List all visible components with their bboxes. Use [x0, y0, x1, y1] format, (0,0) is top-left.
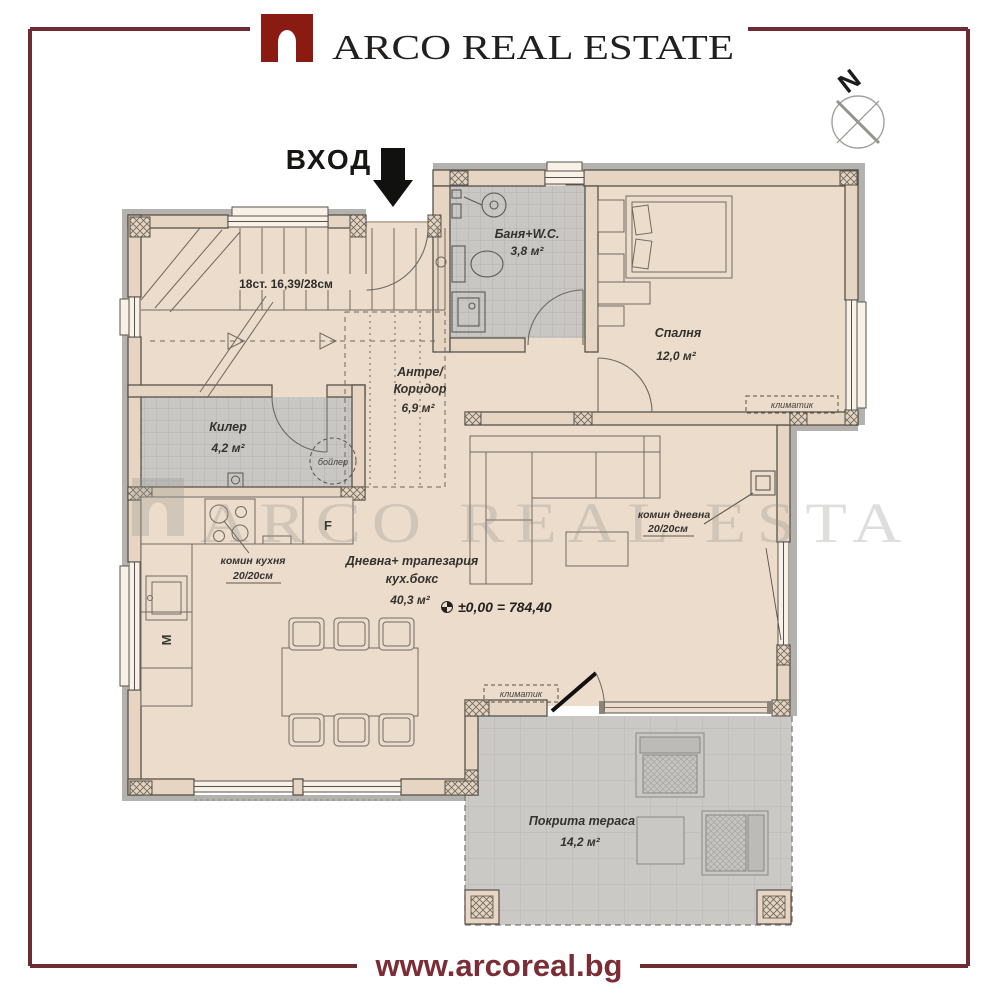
watermark-text: ARCO REAL ESTA — [200, 492, 912, 555]
bedroom-name: Спалня — [655, 326, 702, 340]
ac-bedroom-label: климатик — [771, 400, 814, 410]
level-marker-icon — [442, 602, 453, 613]
ac-living-label: климатик — [500, 689, 543, 699]
living-area: 40,3 м² — [389, 593, 431, 607]
dining-chair — [379, 618, 414, 650]
boiler-label: бойлер — [318, 457, 348, 467]
bathroom-name: Баня+W.C. — [495, 227, 560, 241]
terrace-slider-window — [599, 701, 773, 714]
footer-website: www.arcoreal.bg — [375, 948, 623, 983]
dining-chair — [379, 714, 414, 746]
living-name-line1: Дневна+ трапезария — [345, 554, 479, 568]
entrance-mark: ВХОД — [286, 144, 413, 207]
compass: N — [832, 63, 884, 148]
hallway-area: 6,9 м² — [402, 401, 436, 415]
dining-chair — [334, 714, 369, 746]
dresser — [598, 282, 650, 304]
chimney-kitchen-label: комин кухня — [221, 555, 286, 567]
hallway-name-line2: Коридор — [393, 382, 446, 396]
nightstand — [598, 200, 624, 232]
dining-set — [282, 618, 418, 746]
washing-machine-label: M — [159, 635, 174, 646]
floor-plan-page: ARCO REAL ESTATE N ВХОД — [0, 0, 1001, 1000]
chimney-kitchen-size: 20/20см — [232, 570, 273, 582]
dining-chair — [289, 714, 324, 746]
compass-north-label: N — [832, 63, 866, 99]
closet-area: 4,2 м² — [211, 441, 246, 455]
fridge-label: F — [324, 518, 332, 533]
terrace-side-table — [637, 817, 684, 864]
terrace-armchair-2 — [702, 811, 768, 875]
room-bathroom-floor — [450, 186, 585, 338]
chimney-living-label: комин дневна — [638, 509, 711, 521]
level-mark-label: ±0,00 = 784,40 — [458, 599, 552, 615]
chimney-living-size: 20/20см — [647, 523, 688, 535]
kitchen-sink — [146, 576, 187, 620]
dining-chair — [289, 618, 324, 650]
brand-arch-icon — [261, 14, 313, 62]
dining-table — [282, 648, 418, 716]
entrance-label: ВХОД — [286, 144, 372, 175]
brand-logo: ARCO REAL ESTATE — [261, 14, 734, 67]
closet-name: Килер — [209, 420, 247, 434]
living-name-line2: кух.бокс — [386, 572, 439, 586]
terrace-armchair-1 — [636, 733, 704, 797]
stairs-label: 18ст. 16,39/28см — [239, 277, 333, 291]
dining-chair — [334, 618, 369, 650]
brand-name: ARCO REAL ESTATE — [332, 28, 734, 67]
hallway-name-line1: Антре/ — [396, 365, 444, 379]
dresser — [598, 306, 624, 326]
terrace-area: 14,2 м² — [560, 835, 601, 849]
kitchen-counter-left — [141, 544, 192, 706]
terrace-name: Покрита тераса — [529, 814, 635, 828]
terrace-column — [465, 890, 499, 924]
entrance-arrow-icon — [373, 148, 413, 207]
bedroom-area: 12,0 м² — [656, 349, 697, 363]
terrace-column — [757, 890, 791, 924]
bathroom-area: 3,8 м² — [511, 244, 545, 258]
